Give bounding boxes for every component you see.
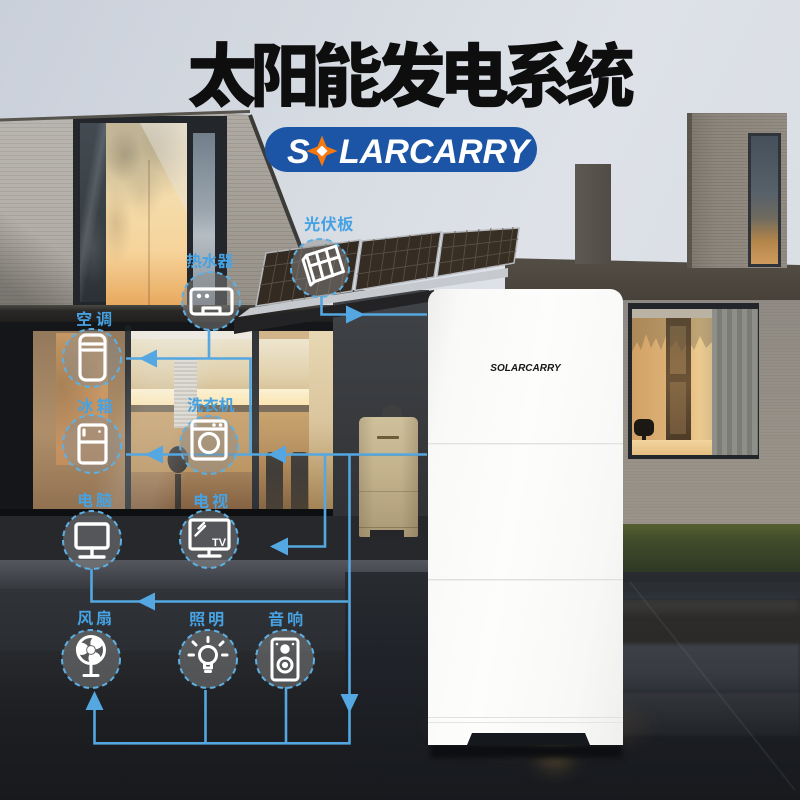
svg-text:LARCARRY: LARCARRY	[339, 133, 532, 171]
svg-text:TV: TV	[212, 537, 227, 549]
svg-text:S: S	[287, 133, 310, 171]
